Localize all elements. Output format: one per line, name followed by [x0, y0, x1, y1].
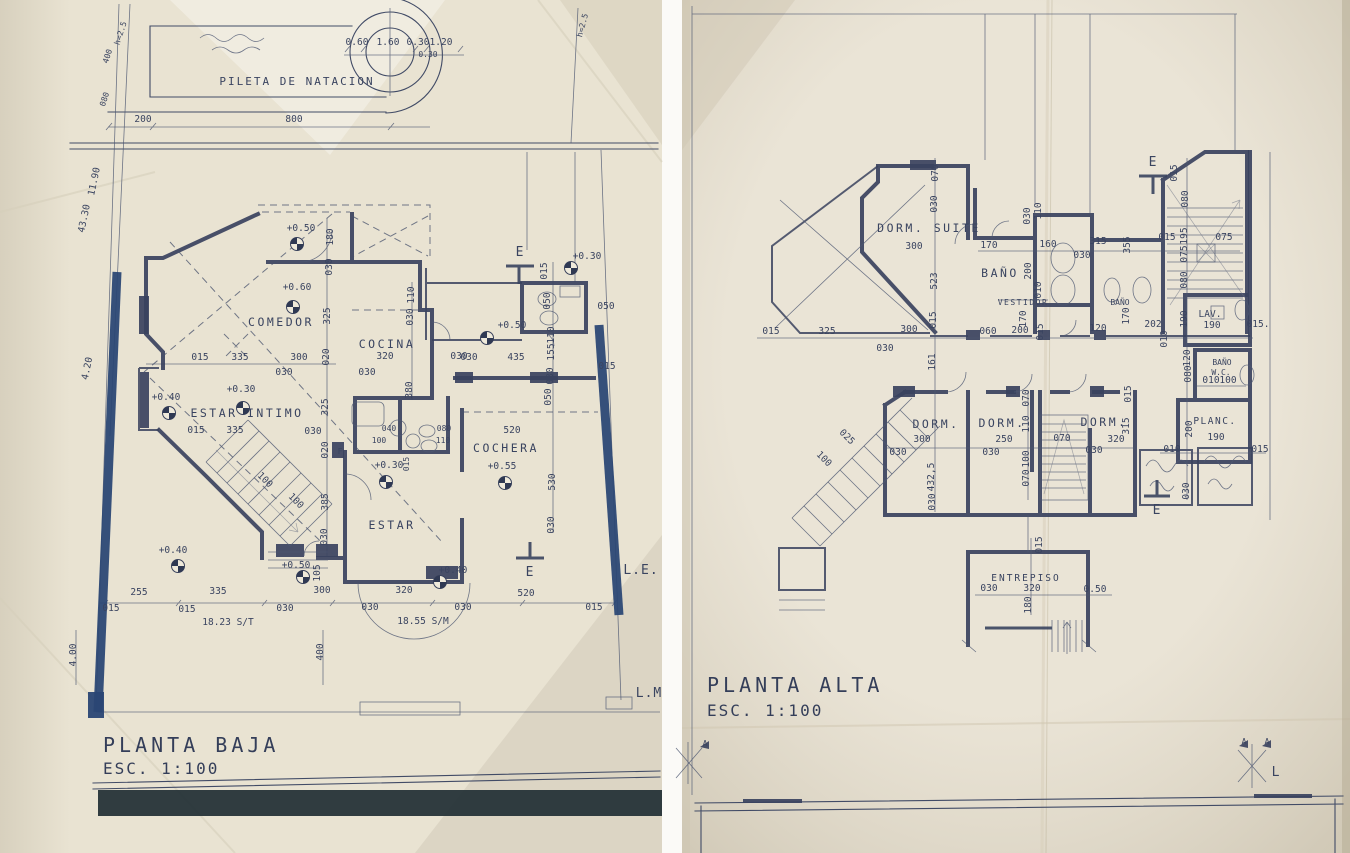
dim-label: 435: [507, 352, 524, 363]
dim-label: 015: [1158, 232, 1175, 243]
dim-label: 075: [1215, 232, 1232, 243]
dim-label: 325: [322, 307, 333, 324]
level-label: +0.30: [573, 251, 602, 262]
dim-label: 015: [1251, 444, 1268, 455]
dim-label: 050: [597, 301, 614, 312]
dim-label: 030: [358, 367, 375, 378]
dim-label: 020: [321, 348, 332, 365]
dim-label: 070: [930, 164, 941, 181]
level-label: +0.40: [159, 545, 188, 556]
dim-label: 385: [320, 493, 331, 510]
dim-label: 080: [437, 424, 452, 433]
dim-label: 380: [404, 381, 415, 398]
dim-label: 015: [598, 361, 615, 372]
level-label: +0.30: [375, 460, 404, 471]
dim-label: 300: [905, 241, 922, 252]
dim-label: 100: [1021, 450, 1032, 467]
dim-label: 080: [1180, 190, 1191, 207]
room-label-estar-intimo: ESTAR INTIMO: [190, 406, 303, 420]
dim-label: 030: [1181, 482, 1192, 499]
dim-label: 030: [361, 602, 378, 613]
dim-label: 355: [1122, 236, 1133, 253]
dim-label: 335: [209, 586, 226, 597]
dim-label: 050: [543, 388, 554, 405]
window-block: [139, 296, 149, 334]
window-block: [140, 372, 149, 428]
dim-label: 320: [1107, 434, 1124, 445]
dim-label: 100: [1219, 375, 1236, 386]
dim-label: 0.30: [407, 37, 430, 48]
area-note: 18.55 S/M: [397, 616, 449, 627]
dim-label: 432,5: [926, 463, 937, 492]
room-label-banio: BAÑO: [981, 265, 1019, 280]
dim-label: 015: [178, 604, 195, 615]
dim-label: 400: [315, 643, 326, 660]
dim-label: 4.00: [68, 643, 79, 666]
dim-label: 300: [290, 352, 307, 363]
axis-letter: A: [1265, 737, 1270, 746]
level-label: +0.55: [488, 461, 517, 472]
level-label: +0.30: [227, 384, 256, 395]
table-edge: [98, 790, 662, 816]
dim-label: 110: [436, 436, 451, 445]
dim-label: 075: [1179, 245, 1190, 262]
dim-label: 015: [539, 262, 550, 279]
dim-label: 110: [1021, 415, 1032, 432]
dim-label: 300: [900, 324, 917, 335]
dim-label: 320: [1023, 583, 1040, 594]
level-label: +0.60: [283, 282, 312, 293]
room-label-comedor: COMEDOR: [248, 315, 314, 329]
dim-label: 010: [1202, 375, 1219, 386]
area-note: 18.23 S/T: [202, 617, 254, 628]
dim-label: 030: [276, 603, 293, 614]
dim-label: 020: [320, 441, 331, 458]
dim-label: 250: [995, 434, 1012, 445]
dim-label: 030: [929, 195, 940, 212]
dim-label: 015: [1123, 385, 1134, 402]
dim-label: 050: [542, 292, 553, 309]
dim-label: 120: [1182, 349, 1193, 366]
dim-label: 325: [320, 398, 331, 415]
room-label-dorm1: DORM.: [912, 417, 959, 431]
dim-label: 015: [187, 425, 204, 436]
dim-label: 030: [546, 516, 557, 533]
dim-label: 030: [275, 367, 292, 378]
dim-label: 170: [1018, 310, 1029, 327]
dim-label: 030: [1085, 445, 1102, 456]
room-label-banio2: BAÑO: [1110, 297, 1129, 307]
dim-label: 0.30: [418, 50, 437, 59]
dim-label: 060: [979, 326, 996, 337]
dim-label: 030: [460, 352, 477, 363]
dim-label: 335: [226, 425, 243, 436]
dim-label: 015: [928, 311, 939, 328]
dim-label: 080: [1183, 365, 1194, 382]
axis-letter: A: [1242, 737, 1247, 746]
dim-label: 200: [1184, 420, 1195, 437]
dim-label: 015: [1169, 164, 1180, 181]
dim-label: 030: [545, 367, 556, 384]
plan-scale-left: ESC. 1:100: [103, 759, 219, 778]
dim-label: 300: [313, 585, 330, 596]
dim-label: 320: [395, 585, 412, 596]
dim-label: 015: [1034, 536, 1045, 553]
dim-label: 015: [402, 457, 411, 472]
dim-label: 030: [405, 308, 416, 325]
dim-label: 030: [876, 343, 893, 354]
dim-label: 523: [929, 272, 940, 289]
dim-label: 520: [503, 425, 520, 436]
dim-label: 315: [1089, 236, 1106, 247]
boundary-label-lm: L.M: [636, 686, 662, 701]
dim-label: 030: [927, 493, 938, 510]
dim-label: 1.60: [377, 37, 400, 48]
section-letter: E: [1153, 503, 1162, 518]
dim-label: 070: [1021, 389, 1032, 406]
dim-label: 190: [1179, 310, 1190, 327]
dim-label: 110: [406, 286, 417, 303]
level-label: +0.50: [498, 320, 527, 331]
dim-label: 161: [927, 353, 938, 370]
dim-label: 015: [762, 326, 779, 337]
dim-label: 030: [980, 583, 997, 594]
dim-label: 200: [1023, 262, 1034, 279]
room-label-lav: LAV.: [1199, 309, 1222, 320]
dim-label: 100: [372, 436, 387, 445]
axis-letter-l: L: [1272, 765, 1281, 780]
section-letter: E: [1149, 155, 1158, 170]
dim-label: 120: [1089, 323, 1106, 334]
dim-label: 015: [585, 602, 602, 613]
level-label: +0.40: [152, 392, 181, 403]
dim-label: 010: [1033, 281, 1044, 298]
section-letter: E: [526, 565, 535, 580]
room-label-estar: ESTAR: [368, 518, 415, 532]
dim-label: 530: [547, 473, 558, 490]
dim-label: 200: [134, 114, 151, 125]
dim-label: 030: [454, 602, 471, 613]
room-label-cochera: COCHERA: [473, 441, 539, 455]
dim-label: 320: [376, 351, 393, 362]
dim-label: 202: [1144, 319, 1161, 330]
section-letter: E: [516, 245, 525, 260]
dim-label: 0.50: [1084, 584, 1107, 595]
dim-label: 080: [1179, 271, 1190, 288]
dim-label: 030: [1022, 207, 1033, 224]
dim-label: 170: [980, 240, 997, 251]
boundary-label-le: L.E.: [623, 563, 658, 578]
floor-plans-svg: PILETA DE NATACION COMEDOR COCINA ESTAR …: [0, 0, 1350, 853]
dim-label: 180: [325, 228, 336, 245]
dim-label: 015.: [1247, 319, 1270, 330]
dim-label: 315: [1121, 417, 1132, 434]
dim-label: 040: [382, 424, 397, 433]
dim-label: 105: [312, 564, 323, 581]
room-label-cocina: COCINA: [359, 337, 416, 351]
dim-label: 070: [1021, 469, 1032, 486]
room-label-planc: PLANC.: [1193, 416, 1236, 427]
room-label-pool: PILETA DE NATACION: [219, 75, 374, 88]
blueprint-photo: PILETA DE NATACION COMEDOR COCINA ESTAR …: [0, 0, 1350, 853]
dim-label: 190: [1203, 320, 1220, 331]
level-label: +0.40: [439, 565, 468, 576]
dim-label: 160: [1039, 239, 1056, 250]
level-label: +0.50: [287, 223, 316, 234]
dim-label: 030: [324, 258, 335, 275]
fireplace-label: F: [338, 447, 343, 456]
dim-label: 110: [1033, 202, 1044, 219]
paper-left: [0, 0, 662, 853]
axis-letter: A: [703, 739, 708, 748]
dim-label: 1.20: [430, 37, 453, 48]
dim-label: 520: [517, 588, 534, 599]
plan-title-right: PLANTA ALTA: [707, 673, 883, 697]
level-label: +0.50: [282, 560, 311, 571]
dim-label: 255: [130, 587, 147, 598]
dim-label: 110: [546, 326, 557, 343]
room-label-banio-wc: BAÑO: [1212, 357, 1231, 367]
dim-label: 195: [1179, 227, 1190, 244]
dim-label: 015: [191, 352, 208, 363]
dim-label: 300: [913, 434, 930, 445]
dim-label: 155: [546, 343, 557, 360]
dim-label: 800: [285, 114, 302, 125]
dim-label: 030: [1073, 250, 1090, 261]
plan-scale-right: ESC. 1:100: [707, 701, 823, 720]
dim-label: 030: [982, 447, 999, 458]
dim-label: 070: [1053, 433, 1070, 444]
dim-label: 015: [102, 603, 119, 614]
dim-label: 170: [1121, 307, 1132, 324]
dim-label: 015: [1035, 323, 1046, 340]
dim-label: 325: [818, 326, 835, 337]
dim-label: 030: [889, 447, 906, 458]
dim-label: 030: [319, 528, 330, 545]
room-label-dorm2: DORM.: [978, 416, 1025, 430]
dim-label: 0.60: [346, 37, 369, 48]
dim-label: 190: [1207, 432, 1224, 443]
dim-label: 010: [1159, 330, 1170, 347]
dim-label: 335: [231, 352, 248, 363]
room-label-dorm-suite: DORM. SUITE: [877, 221, 981, 235]
dim-label: 010: [1163, 444, 1180, 455]
dim-label: 030: [304, 426, 321, 437]
plan-title-left: PLANTA BAJA: [103, 733, 279, 757]
dim-label: 180: [1023, 596, 1034, 613]
